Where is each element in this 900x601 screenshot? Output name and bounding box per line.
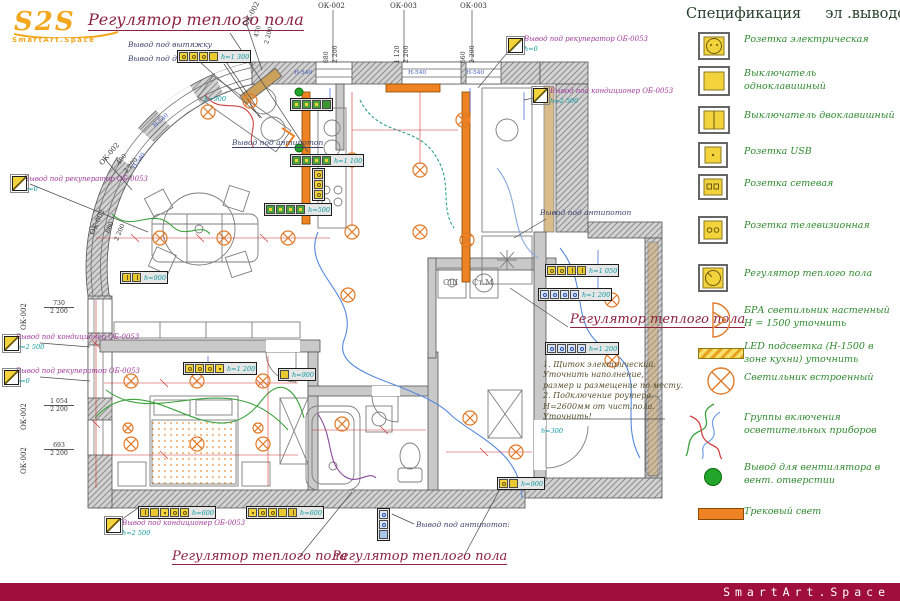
outlet-cell: [278, 508, 287, 517]
outlet-cell: [560, 290, 569, 299]
track-light-icon: [698, 508, 744, 520]
socket-network-icon: [698, 174, 728, 200]
tv-cabinet: [114, 322, 300, 338]
window-dim: 2 200: [332, 45, 339, 63]
outlet-cell: [547, 266, 556, 275]
led-strip-icon: [698, 348, 744, 359]
window-callout: ОК-002: [20, 403, 28, 430]
outlet-cell: [195, 364, 204, 373]
outlet-cell: [140, 508, 149, 517]
window-dim: 730 2 200: [44, 300, 74, 315]
window-dim: 2 200: [469, 45, 476, 63]
ceiling-light-icon: [341, 288, 355, 302]
note-line: размер и размещение по месту.: [543, 381, 678, 391]
legend-item-label: Вывод для вентилятора в вент. отверстии: [744, 462, 896, 488]
outlet-cell: [567, 266, 576, 275]
height-tag: h=0: [524, 46, 538, 53]
outlet-cell: [170, 508, 179, 517]
label-conditioner-right: Вывод под кондиционер ОБ-0053: [550, 88, 673, 96]
outlet-row: h=1 100: [290, 154, 364, 167]
outlet-cell: [302, 156, 311, 165]
switch-row: h=900: [120, 271, 168, 284]
label-antiflood-bottom: Вывод под антипотоп:: [416, 520, 510, 529]
window-callout: ОК-002: [20, 303, 28, 330]
outlet-cell: [302, 100, 311, 109]
wardrobe: [280, 398, 308, 464]
legend-panel: Спецификация эл .выводов : Розетка элект…: [680, 0, 900, 580]
outlet-cell: [288, 508, 297, 517]
ceiling-light-icon: [413, 163, 427, 177]
outlet-cell: [199, 52, 208, 61]
outlet-row: h=600: [246, 506, 324, 519]
window-dim: 2 200: [403, 45, 410, 63]
height-tag: h=2 500: [550, 98, 578, 105]
outlet-cell: [312, 100, 321, 109]
height-tag: h=600: [300, 509, 322, 517]
outlet-cell: [150, 508, 159, 517]
height-tag: h=900: [144, 274, 166, 282]
outlet-single-icon: [4, 336, 19, 351]
switch-double-icon: [698, 106, 730, 134]
height-tag: h=1 100: [334, 157, 362, 165]
height-tag: h=500: [308, 206, 330, 214]
label-floor-heating-regulator-br: Регулятор теплого пола: [332, 550, 507, 565]
legend-item-label: Розетка сетевая: [744, 178, 896, 191]
outlet-cell: [292, 100, 301, 109]
socket-electric-icon: [698, 32, 730, 60]
outlet-row: h=1 300: [177, 50, 251, 63]
height-tag: h=900: [521, 480, 543, 488]
outlet-cell: [205, 364, 214, 373]
label-recuperator-top: Вывод под рекуператор ОБ-0053: [524, 36, 648, 44]
outlet-cell: [258, 508, 267, 517]
outlet-stack: [377, 508, 390, 541]
outlet-row: h=1 200: [538, 288, 612, 301]
drawing-sheet: S2S SmartArt.Space Регулятор теплого пол…: [0, 0, 900, 601]
outlet-cell: [557, 344, 566, 353]
label-antiflood-right: Вывод под антипотоп: [540, 208, 631, 217]
outlet-cell: [314, 170, 323, 179]
label-conditioner-left: Вывод под кондиционер ОБ-0053: [16, 334, 139, 342]
height-tag: h=1 050: [589, 267, 617, 275]
switch-groups-icon: [682, 402, 726, 460]
nightstand: [242, 462, 270, 486]
legend-item-label: Трековый свет: [744, 506, 896, 519]
window-dim: 1 120: [394, 45, 401, 63]
label-conditioner-bottom: Вывод под кондиционер ОБ-0053: [122, 520, 245, 528]
note-line: Уточнить наполнение,: [543, 370, 678, 380]
switch-single-icon: h=900: [278, 368, 316, 381]
window-dim-h: 2 200: [44, 406, 74, 413]
outlet-cell: [292, 156, 301, 165]
legend-item-label: Розетка USB: [744, 146, 896, 159]
label-hood-outlet: Вывод под вытяжку: [128, 40, 212, 49]
outlet-cell: [122, 273, 131, 282]
outlet-cell: [314, 190, 323, 199]
outlet-cell: [179, 52, 188, 61]
sill-height-label: Н-540: [408, 70, 426, 76]
height-tag: h=1 200: [589, 345, 617, 353]
outlet-cell: [577, 266, 586, 275]
window-callout: ОК-003: [460, 2, 487, 10]
legend-item-label: Регулятор теплого пола: [744, 268, 896, 281]
kitchen-units: [318, 88, 532, 284]
outlet-row: h=1 200: [545, 342, 619, 355]
footer-bar: SmartArt.Space: [0, 583, 900, 601]
outlet-cell: [557, 266, 566, 275]
legend-item-label: Группы включения осветительных приборов: [744, 412, 896, 438]
label-floor-heating-regulator-bl: Регулятор теплого пола: [172, 550, 347, 565]
outlet-cell: [547, 344, 556, 353]
ceiling-light-icon: [463, 411, 477, 425]
window-callout: ОК-003: [390, 2, 417, 10]
logo-text: S2S: [14, 7, 76, 37]
ceiling-light-icon: [335, 417, 349, 431]
outlet-cell: [379, 530, 388, 539]
note-line: 1. Щиток электрический.: [543, 360, 678, 370]
toilet: [398, 443, 422, 482]
legend-item-label: Светильник встроенный: [744, 372, 896, 385]
label-laundry-sh: СШ: [443, 278, 458, 287]
hall-closet: [488, 390, 522, 438]
outlet-cell: [322, 100, 331, 109]
label-recuperator-left: Вывод под рекуператор ОБ-0053: [24, 176, 148, 184]
ceiling-light-icon: [201, 105, 215, 119]
label-antiflood-mid: Вывод под антипотоп: [232, 138, 323, 148]
outlet-cell: [570, 290, 579, 299]
legend-item-label: Выключатель одноклавишный: [744, 68, 896, 94]
height-tag: h=900: [292, 371, 314, 379]
outlet-cell: [379, 520, 388, 529]
note-line: 2. Подключение роутера.: [543, 391, 678, 401]
outlet-cell: [160, 508, 169, 517]
ceiling-light-icon: [124, 374, 138, 388]
legend-item-label: Розетка электрическая: [744, 34, 896, 47]
outlet-row: h=1 200: [183, 362, 257, 375]
outlet-cell: [209, 52, 218, 61]
outlet-cell: [296, 205, 305, 214]
outlet-cell: [550, 290, 559, 299]
outlet-single-icon: [533, 88, 548, 103]
outlet-cell: [322, 156, 331, 165]
ceiling-light-icon: [345, 225, 359, 239]
height-tag: h=900: [204, 96, 226, 103]
outlet-cell: [314, 180, 323, 189]
outlet-cell: [577, 344, 586, 353]
outlet-single-icon: [4, 370, 19, 385]
legend-item-label: LED подсветка (Н-1500 в зоне кухни) уточ…: [744, 341, 896, 367]
legend-title-word: Спецификация: [686, 6, 801, 22]
outlet-cell: [189, 52, 198, 61]
outlet-cell: [266, 205, 275, 214]
window-dim: 693 2 200: [44, 442, 74, 457]
legend-item-label: Выключатель двоклавишный: [744, 110, 896, 123]
height-tag: h=1 200: [227, 365, 255, 373]
outlet-cell: [132, 273, 141, 282]
outlet-single-icon: [106, 518, 121, 533]
door-arc: [372, 396, 398, 422]
height-tag: h=1 200: [582, 291, 610, 299]
outlet-cell: [509, 479, 518, 488]
outlet-single-icon: [12, 176, 27, 191]
height-tag: h=600: [192, 509, 214, 517]
outlet-row: h=900: [497, 477, 545, 490]
outlet-cell: [567, 344, 576, 353]
outlet-cell: [379, 510, 388, 519]
sill-height-label: Н-540: [294, 70, 312, 76]
height-tag: h=2 500: [122, 530, 150, 537]
fan-outlet-icon: [704, 468, 722, 486]
footer-brand: SmartArt.Space: [723, 585, 890, 599]
ceiling-light-icon: [253, 423, 263, 433]
window-dim-h: 2 200: [44, 308, 74, 315]
window-callout: ОК-002: [20, 447, 28, 474]
legend-item-label: Розетка телевизионная: [744, 220, 896, 233]
note-line: Уточнить!: [543, 412, 678, 422]
legend-title: Спецификация эл .выводов :: [686, 6, 898, 22]
outlet-stack: [312, 168, 325, 201]
legend-item-label: БРА светильник настенный H = 1500 уточни…: [744, 305, 896, 331]
ceiling-light-icon: [124, 437, 138, 451]
switch-single-icon: [698, 66, 730, 96]
outlet-cell: [185, 364, 194, 373]
ceiling-light-icon: [123, 423, 133, 433]
outlet-cell: [215, 364, 224, 373]
nightstand: [118, 462, 146, 486]
window-dim-w: 1 054: [44, 398, 74, 406]
legend-title-word: эл .выводов: [825, 6, 900, 22]
outlet-cell: [312, 156, 321, 165]
outlet-cell: [248, 508, 257, 517]
wall-sconce-icon: [706, 300, 730, 340]
window-dim-h: 2 200: [44, 450, 74, 457]
outlet-single-icon: [508, 38, 523, 53]
socket-tv-icon: [698, 216, 728, 244]
height-tag: h=2 500: [16, 344, 44, 351]
ceiling-light-icon: [413, 225, 427, 239]
outlet-cell: [286, 205, 295, 214]
ceiling-light-icon: [190, 374, 204, 388]
outlet-cell: [280, 370, 289, 379]
outlet-cell: [180, 508, 189, 517]
recessed-light-icon: [706, 366, 736, 396]
height-tag: h=300: [541, 428, 563, 435]
window-dim-w: 730: [44, 300, 74, 308]
window-dim: 1 054 2 200: [44, 398, 74, 413]
note-block: 1. Щиток электрический. Уточнить наполне…: [543, 360, 678, 422]
window-dim-w: 693: [44, 442, 74, 450]
window-dim: 680: [323, 51, 330, 63]
outlet-cell: [499, 479, 508, 488]
outlet-cell: [540, 290, 549, 299]
outlet-row: h=500: [264, 203, 332, 216]
window-dim: 660: [460, 51, 467, 63]
label-recuperator-left2: Вывод под рекуператор ОБ-0053: [16, 368, 140, 376]
logo-subtext: SmartArt.Space: [12, 36, 95, 44]
sink: [366, 406, 392, 432]
sill-height-label: Н-540: [466, 70, 484, 76]
outlet-row: [290, 98, 333, 111]
socket-usb-icon: [698, 142, 728, 168]
outlet-row: h=600: [138, 506, 216, 519]
outlet-row: h=1 050: [545, 264, 619, 277]
note-line: Н=2600мм от чист.пола.: [543, 402, 678, 412]
outlet-cell: [268, 508, 277, 517]
window-callout: ОК-002: [318, 2, 345, 10]
outlet-cell: [276, 205, 285, 214]
floor-heating-regulator-icon: [698, 264, 728, 292]
height-tag: h=1 300: [221, 53, 249, 61]
label-laundry-stm: Ст.М: [472, 278, 493, 287]
